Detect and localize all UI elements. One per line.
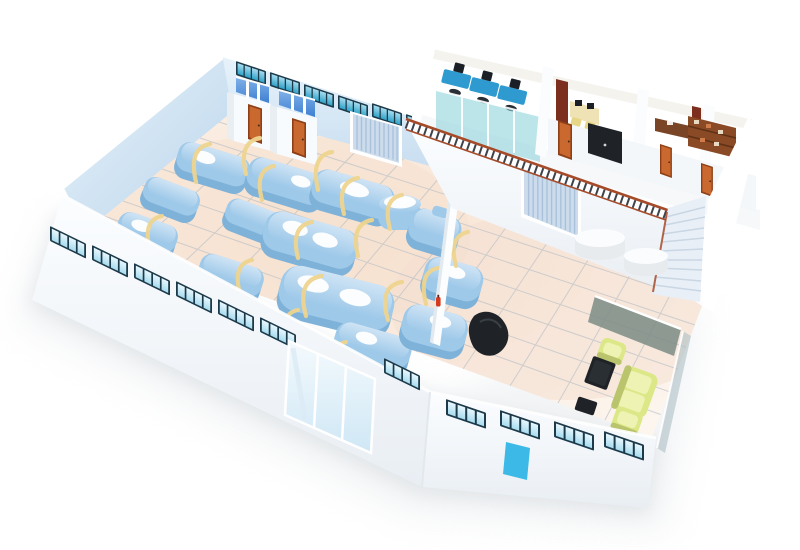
round-table xyxy=(575,229,625,260)
office-door xyxy=(558,120,572,160)
office-door xyxy=(660,144,672,178)
bookshelf xyxy=(556,79,568,127)
office-door xyxy=(701,163,713,197)
service-door xyxy=(503,442,530,480)
restroom-door xyxy=(292,118,306,158)
floor-plan-rendering xyxy=(0,0,800,550)
round-table xyxy=(624,248,668,276)
floor-plan-canvas xyxy=(0,0,800,550)
